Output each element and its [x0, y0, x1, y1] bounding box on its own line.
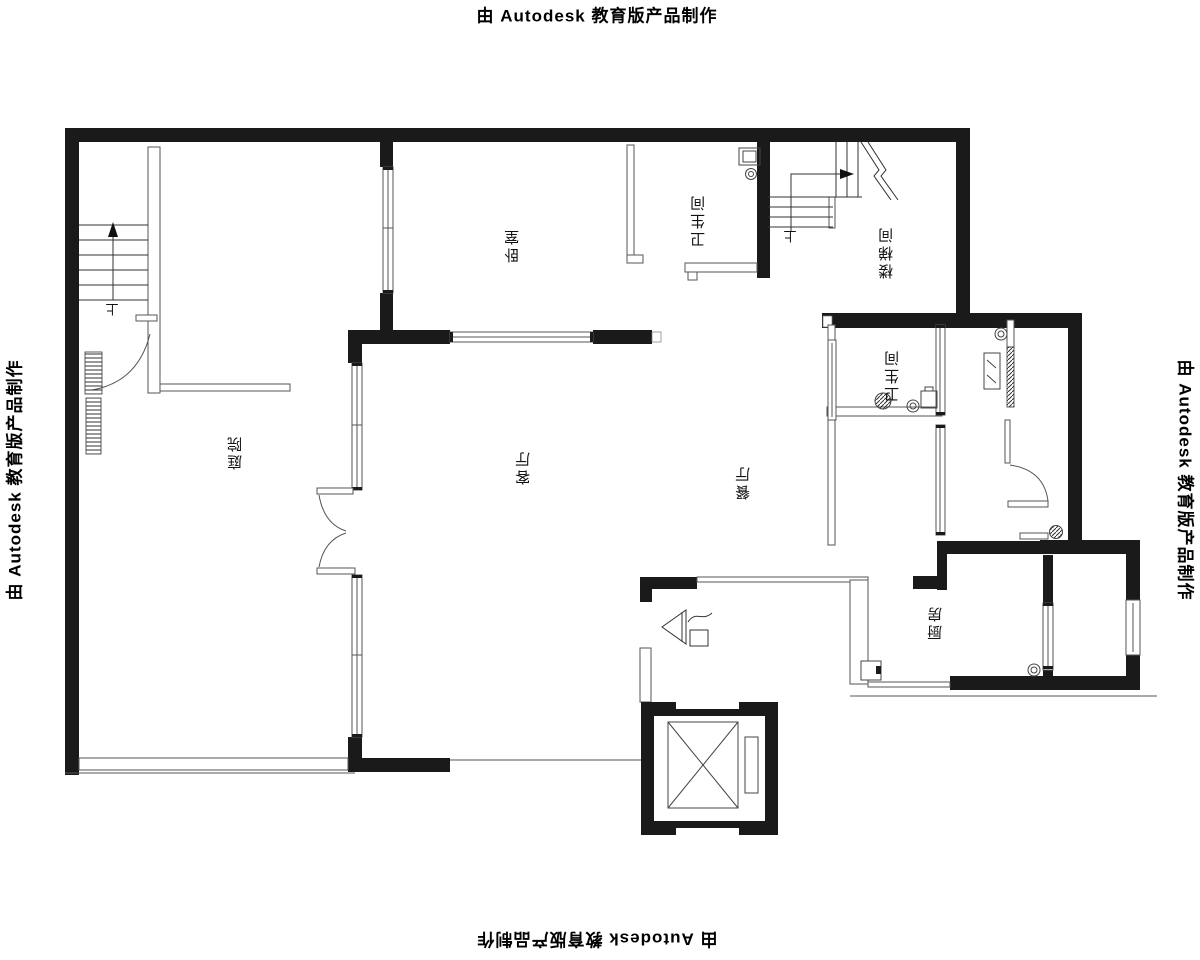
floor-plan: 由 Autodesk 教育版产品制作 由 Autodesk 教育版产品制作 由 … [0, 0, 1200, 960]
floor-plan-drawing [0, 0, 1200, 960]
window [352, 363, 362, 490]
stair-break-line [861, 142, 891, 200]
entry-marker-icon [662, 610, 712, 646]
room-label-courtyard: 庭院 [228, 434, 244, 470]
room-label-dining-room: 餐厅 [736, 464, 752, 500]
floor-drain-icon [1050, 526, 1063, 539]
stair-direction-arrow-icon [108, 222, 118, 237]
vent-shaft-icon [739, 148, 760, 165]
elevator-counterweight-icon [745, 737, 758, 793]
window [352, 575, 362, 737]
window [1126, 600, 1140, 655]
stair-break-line [868, 142, 898, 200]
window [828, 340, 836, 420]
room-label-bathroom-mid: 卫生间 [885, 348, 901, 402]
room-label-bathroom-top: 卫生间 [691, 193, 707, 247]
watermark-right: 由 Autodesk 教育版产品制作 [1175, 360, 1200, 601]
elevator [641, 702, 778, 835]
room-label-living-room: 客厅 [516, 449, 532, 485]
watermark-top: 由 Autodesk 教育版产品制作 [477, 2, 718, 27]
french-door [317, 488, 355, 574]
floor-drain-icon [746, 169, 757, 180]
watermark-bottom: 由 Autodesk 教育版产品制作 [477, 929, 718, 954]
windows [352, 167, 1140, 737]
floor-drain-icon [1028, 664, 1040, 676]
window [936, 425, 945, 535]
room-label-stairwell: 楼梯间 [879, 225, 895, 279]
floor-drain-icon [995, 328, 1007, 340]
intercom-icon [861, 661, 881, 680]
room-label-bedroom: 卧室 [505, 227, 521, 263]
room-label-kitchen: 厨房 [928, 604, 944, 640]
sink-icon [921, 387, 937, 408]
window [383, 167, 393, 293]
window [1043, 603, 1053, 670]
watermark-left: 由 Autodesk 教育版产品制作 [1, 360, 26, 601]
door [1008, 465, 1048, 539]
window [450, 332, 593, 342]
washing-machine-icon [984, 353, 1000, 389]
radiator-icon [85, 352, 102, 394]
elevator-cab-icon [668, 722, 738, 808]
shower-screen-icon [1007, 347, 1014, 407]
stair-up-marker: 上 [105, 301, 118, 320]
stair-up-marker: 上 [783, 228, 796, 247]
stairs-upper-left [79, 222, 148, 454]
radiator-icon [86, 398, 101, 454]
